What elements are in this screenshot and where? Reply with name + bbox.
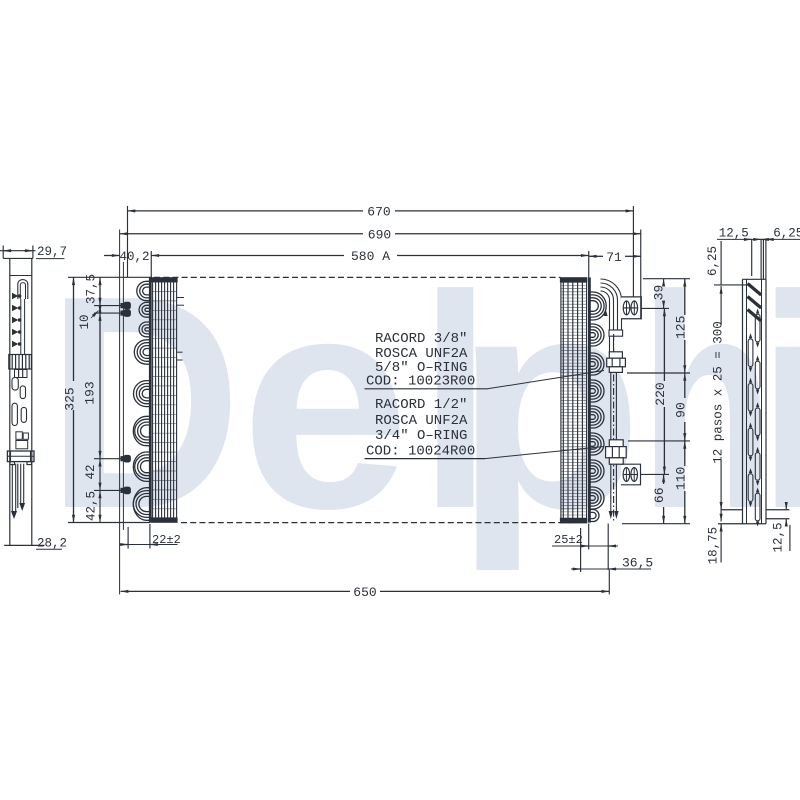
svg-text:37,5: 37,5 xyxy=(85,274,99,304)
svg-text:RACORD 1/2": RACORD 1/2" xyxy=(375,397,467,413)
svg-text:i: i xyxy=(759,232,800,571)
svg-text:90: 90 xyxy=(674,402,689,418)
svg-text:12,5: 12,5 xyxy=(719,227,749,241)
svg-text:3/4" O–RING: 3/4" O–RING xyxy=(375,428,467,444)
svg-text:18,75: 18,75 xyxy=(707,527,721,565)
svg-text:650: 650 xyxy=(353,585,376,600)
svg-text:6,25: 6,25 xyxy=(706,246,720,276)
svg-text:325: 325 xyxy=(63,387,78,410)
svg-text:25±2: 25±2 xyxy=(554,533,583,547)
svg-text:670: 670 xyxy=(367,205,390,220)
svg-text:125: 125 xyxy=(674,316,689,339)
svg-text:193: 193 xyxy=(83,381,98,404)
svg-text:RACORD 3/8": RACORD 3/8" xyxy=(375,331,467,347)
svg-text:71: 71 xyxy=(606,250,622,265)
svg-text:ROSCA UNF2A: ROSCA UNF2A xyxy=(375,413,468,429)
svg-text:22±2: 22±2 xyxy=(152,533,181,547)
svg-text:220: 220 xyxy=(653,382,668,405)
svg-text:690: 690 xyxy=(368,227,391,242)
svg-text:42: 42 xyxy=(84,464,98,479)
svg-text:10: 10 xyxy=(78,314,92,329)
svg-text:580 A: 580 A xyxy=(351,249,390,264)
svg-text:36,5: 36,5 xyxy=(622,556,653,571)
svg-text:29,7: 29,7 xyxy=(37,245,67,259)
svg-text:40,2: 40,2 xyxy=(119,250,149,264)
svg-text:39: 39 xyxy=(652,285,667,301)
svg-text:66: 66 xyxy=(652,487,667,503)
svg-text:12 pasos x 25 = 300: 12 pasos x 25 = 300 xyxy=(712,321,726,464)
svg-text:28,2: 28,2 xyxy=(37,536,67,550)
svg-text:COD: 10023R00: COD: 10023R00 xyxy=(366,374,475,390)
svg-text:110: 110 xyxy=(673,467,688,490)
svg-text:COD: 10024R00: COD: 10024R00 xyxy=(366,444,475,460)
svg-text:12,5: 12,5 xyxy=(772,522,786,552)
svg-text:42,5: 42,5 xyxy=(85,491,99,521)
svg-text:6,25: 6,25 xyxy=(773,227,800,241)
